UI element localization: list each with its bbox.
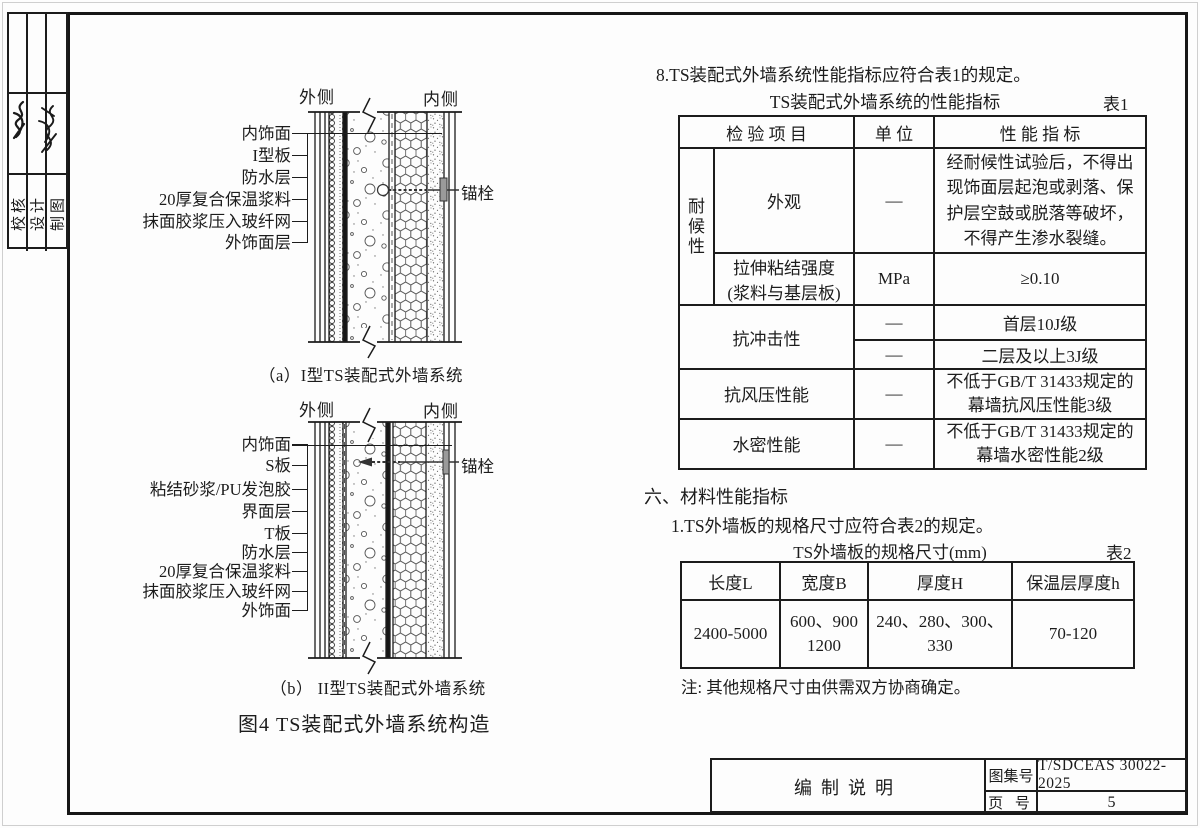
cell-width: 600、900 1200 (780, 600, 868, 668)
table-row: 水密性能 — 不低于GB/T 31433规定的 幕墙水密性能2级 (679, 419, 1146, 469)
table-row: 拉伸粘结强度 (浆料与基层板) MPa ≥0.10 (679, 253, 1146, 305)
leader-tick (292, 591, 308, 592)
col-header-thickness: 厚度H (868, 562, 1012, 600)
leader-tick (292, 199, 308, 200)
layer-label: 内饰面 (101, 435, 291, 454)
leader-tick (292, 242, 308, 243)
stamp-label-design: 设计 (28, 175, 47, 251)
col-header-item: 检 验 项 目 (679, 116, 854, 148)
cell-length: 2400-5000 (681, 600, 780, 668)
layer-label: 防水层 (101, 543, 291, 562)
page-number-label: 页 号 (984, 790, 1036, 813)
leader-tick (292, 155, 308, 156)
section-6-heading: 六、材料性能指标 (644, 483, 788, 509)
layer-label: T板 (101, 524, 291, 543)
layer-label: 外饰面 (101, 601, 291, 620)
leader-tick (292, 533, 308, 534)
cell-item: 水密性能 (679, 419, 854, 469)
col-header-length: 长度L (681, 562, 780, 600)
col-header-insulation: 保温层厚度h (1012, 562, 1134, 600)
table-row: 抗风压性能 — 不低于GB/T 31433规定的 幕墙抗风压性能3级 (679, 369, 1146, 419)
leader-tick (292, 571, 308, 572)
layer-label: S板 (101, 456, 291, 475)
layer-label: 20厚复合保温浆料 (101, 190, 291, 209)
leader-tick (292, 221, 308, 222)
cell-unit: — (854, 419, 934, 469)
title-block: 编制说明 图集号 T/SDCEAS 30022-2025 页 号 5 (710, 758, 1187, 813)
stamp-label-check: 校核 (9, 175, 28, 251)
layer-label: 抹面胶浆压入玻纤网 (101, 212, 291, 231)
side-label-inner: 内侧 (423, 85, 459, 110)
layer-label: 界面层 (101, 502, 291, 521)
layer-label: 抹面胶浆压入玻纤网 (101, 582, 291, 601)
dimension-table: 长度L 宽度B 厚度H 保温层厚度h 2400-5000 600、900 120… (680, 561, 1135, 669)
wall-section-b (290, 395, 505, 677)
atlas-number-label: 图集号 (984, 760, 1036, 790)
cell-value: 首层10J级 (934, 305, 1146, 340)
cell-value: 二层及以上3J级 (934, 340, 1146, 369)
stamp-empty-cell (47, 14, 66, 94)
wall-section-a (290, 92, 505, 358)
side-label-outer: 外侧 (299, 396, 335, 421)
leader-tick (292, 610, 308, 611)
table-row: 耐候性 外观 — 经耐候性试验后，不得出现饰面层起泡或剥落、保护层空鼓或脱落等破… (679, 148, 1146, 253)
table-row: 抗冲击性 — 首层10J级 (679, 305, 1146, 340)
performance-table: 检 验 项 目 单 位 性 能 指 标 耐候性 外观 — 经耐候性试验后，不得出… (678, 115, 1147, 470)
caption-b: （b） II型TS装配式外墙系统 (248, 675, 508, 699)
cell-unit: — (854, 369, 934, 419)
signature-1 (14, 102, 24, 138)
stamp-empty-cell (28, 14, 47, 94)
design-label: 设计 (26, 195, 47, 231)
leader-tick (292, 177, 308, 178)
table1-tag: 表1 (1103, 90, 1129, 115)
caption-a: （a）I型TS装配式外墙系统 (236, 362, 486, 386)
cell-value: 不低于GB/T 31433规定的 幕墙抗风压性能3级 (934, 369, 1146, 419)
stamp-label-draft: 制图 (47, 175, 66, 251)
side-label-inner: 内侧 (423, 397, 459, 422)
leader-tick (292, 489, 308, 490)
table2-note: 注: 其他规格尺寸由供需双方协商确定。 (681, 674, 970, 698)
col-header-index: 性 能 指 标 (934, 116, 1146, 148)
cell-item: 抗冲击性 (679, 305, 854, 369)
layer-label: 粘结砂浆/PU发泡胶 (101, 480, 291, 499)
cell-thickness: 240、280、300、 330 (868, 600, 1012, 668)
cell-value: 经耐候性试验后，不得出现饰面层起泡或剥落、保护层空鼓或脱落等破坏，不得产生渗水裂… (934, 148, 1146, 253)
layer-label: 内饰面 (101, 124, 291, 143)
leader-spine (307, 444, 308, 610)
anchor-label: 锚栓 (461, 453, 494, 477)
cell-unit: MPa (854, 253, 934, 305)
table-header-row: 长度L 宽度B 厚度H 保温层厚度h (681, 562, 1134, 600)
leader-line-inner-finish (292, 133, 442, 134)
cell-unit: — (854, 148, 934, 253)
atlas-page: 校核 设计 制图 (0, 0, 1200, 828)
check-label: 校核 (7, 195, 28, 231)
cell-item: 外观 (714, 148, 854, 253)
group-weatherability: 耐候性 (679, 148, 714, 305)
table-row: 2400-5000 600、900 1200 240、280、300、 330 … (681, 600, 1134, 668)
layer-label: I型板 (101, 146, 291, 165)
figure-caption: 图4 TS装配式外墙系统构造 (238, 708, 490, 737)
cell-insulation: 70-120 (1012, 600, 1134, 668)
cell-item: 拉伸粘结强度 (浆料与基层板) (714, 253, 854, 305)
layer-label: 外饰面层 (101, 233, 291, 252)
handwritten-signatures (8, 94, 68, 172)
cell-value: ≥0.10 (934, 253, 1146, 305)
col-header-width: 宽度B (780, 562, 868, 600)
table1-title: TS装配式外墙系统的性能指标 (720, 89, 1050, 114)
cell-value: 不低于GB/T 31433规定的 幕墙水密性能2级 (934, 419, 1146, 469)
leader-tick (292, 511, 308, 512)
signature-2 (39, 106, 56, 152)
stamp-empty-cell (9, 14, 28, 94)
anchor-label: 锚栓 (461, 180, 494, 204)
cell-item: 抗风压性能 (679, 369, 854, 419)
cell-unit: — (854, 340, 934, 369)
leader-line-inner-finish (292, 445, 452, 446)
col-header-unit: 单 位 (854, 116, 934, 148)
leader-spine (307, 133, 308, 243)
title-block-title: 编制说明 (712, 760, 984, 813)
table-header-row: 检 验 项 目 单 位 性 能 指 标 (679, 116, 1146, 148)
section-6-item: 1.TS外墙板的规格尺寸应符合表2的规定。 (671, 513, 993, 538)
side-label-outer: 外侧 (299, 83, 335, 108)
atlas-number-value: T/SDCEAS 30022-2025 (1036, 760, 1185, 790)
leader-tick (292, 465, 308, 466)
draft-label: 制图 (46, 195, 67, 231)
page-number-value: 5 (1036, 790, 1185, 813)
layer-label: 防水层 (101, 168, 291, 187)
cell-unit: — (854, 305, 934, 340)
layer-label: 20厚复合保温浆料 (101, 562, 291, 581)
section-8-text: 8.TS装配式外墙系统性能指标应符合表1的规定。 (656, 62, 1031, 87)
table2-title: TS外墙板的规格尺寸(mm) (740, 538, 1040, 563)
leader-tick (292, 552, 308, 553)
